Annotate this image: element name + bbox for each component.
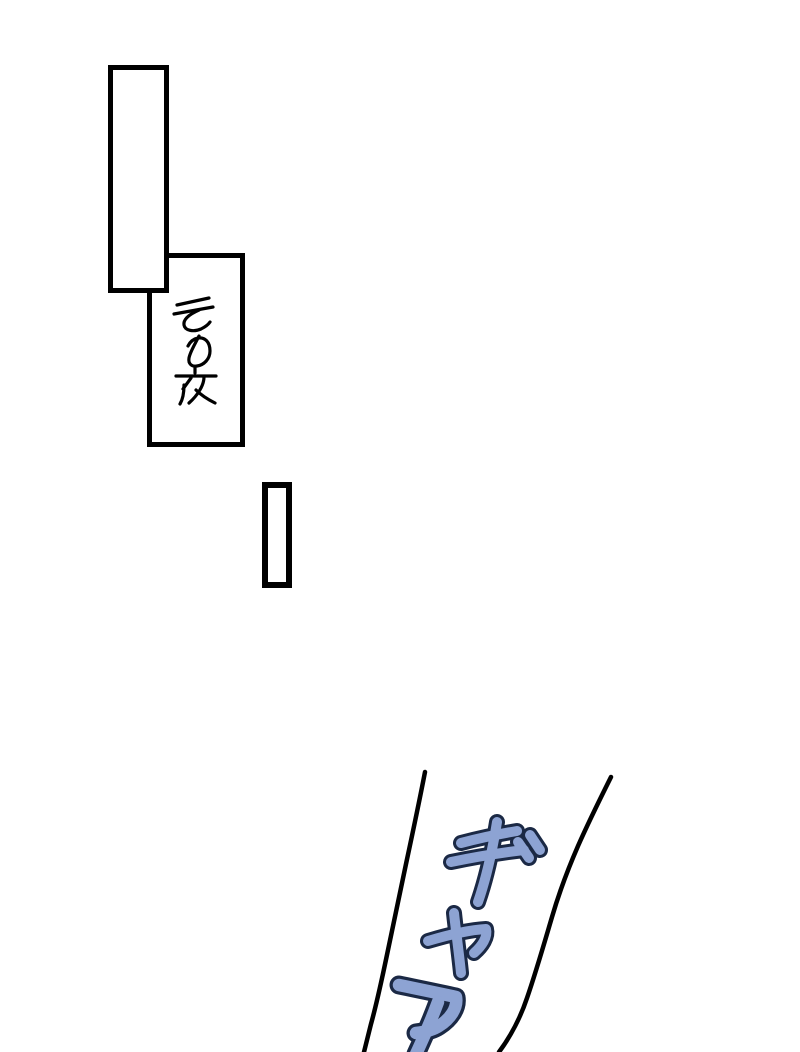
motion-line-right — [499, 777, 611, 1052]
glyph-stroke — [461, 831, 517, 843]
tall-box — [108, 65, 169, 293]
ya-fill — [428, 913, 486, 973]
glyph-yoru-stroke — [196, 390, 215, 403]
glyph-stroke — [416, 1002, 438, 1052]
gi-fill — [451, 822, 540, 902]
glyph-stroke — [399, 985, 456, 1033]
scream-char-ya — [428, 913, 486, 973]
glyph-stroke — [454, 913, 461, 973]
motion-lines — [364, 772, 611, 1052]
manga-page: その夜 — [0, 0, 800, 1052]
glyph-stroke — [518, 842, 529, 858]
caption-glyphs — [174, 298, 216, 404]
glyph-stroke — [530, 835, 540, 850]
glyph-stroke — [530, 835, 540, 850]
gi-outline — [451, 822, 540, 902]
scream-text-art — [399, 822, 540, 1052]
glyph-stroke — [416, 1002, 438, 1052]
glyph-stroke — [478, 822, 497, 902]
glyph-stroke — [428, 929, 486, 953]
glyph-stroke — [454, 913, 461, 973]
glyph-no-stroke — [188, 336, 210, 366]
a-fill — [399, 985, 456, 1052]
motion-line-left — [364, 772, 425, 1052]
small-box — [262, 482, 292, 588]
glyph-stroke — [451, 850, 524, 862]
glyph-stroke — [399, 985, 456, 1033]
ya-outline — [428, 913, 486, 973]
scream-char-a — [399, 985, 456, 1052]
glyph-stroke — [428, 929, 486, 953]
glyph-so-stroke — [177, 298, 209, 305]
glyph-stroke — [461, 831, 517, 843]
glyph-stroke — [518, 842, 529, 858]
scream-char-gi — [451, 822, 540, 902]
a-outline — [399, 985, 456, 1052]
glyph-stroke — [451, 850, 524, 862]
glyph-stroke — [478, 822, 497, 902]
